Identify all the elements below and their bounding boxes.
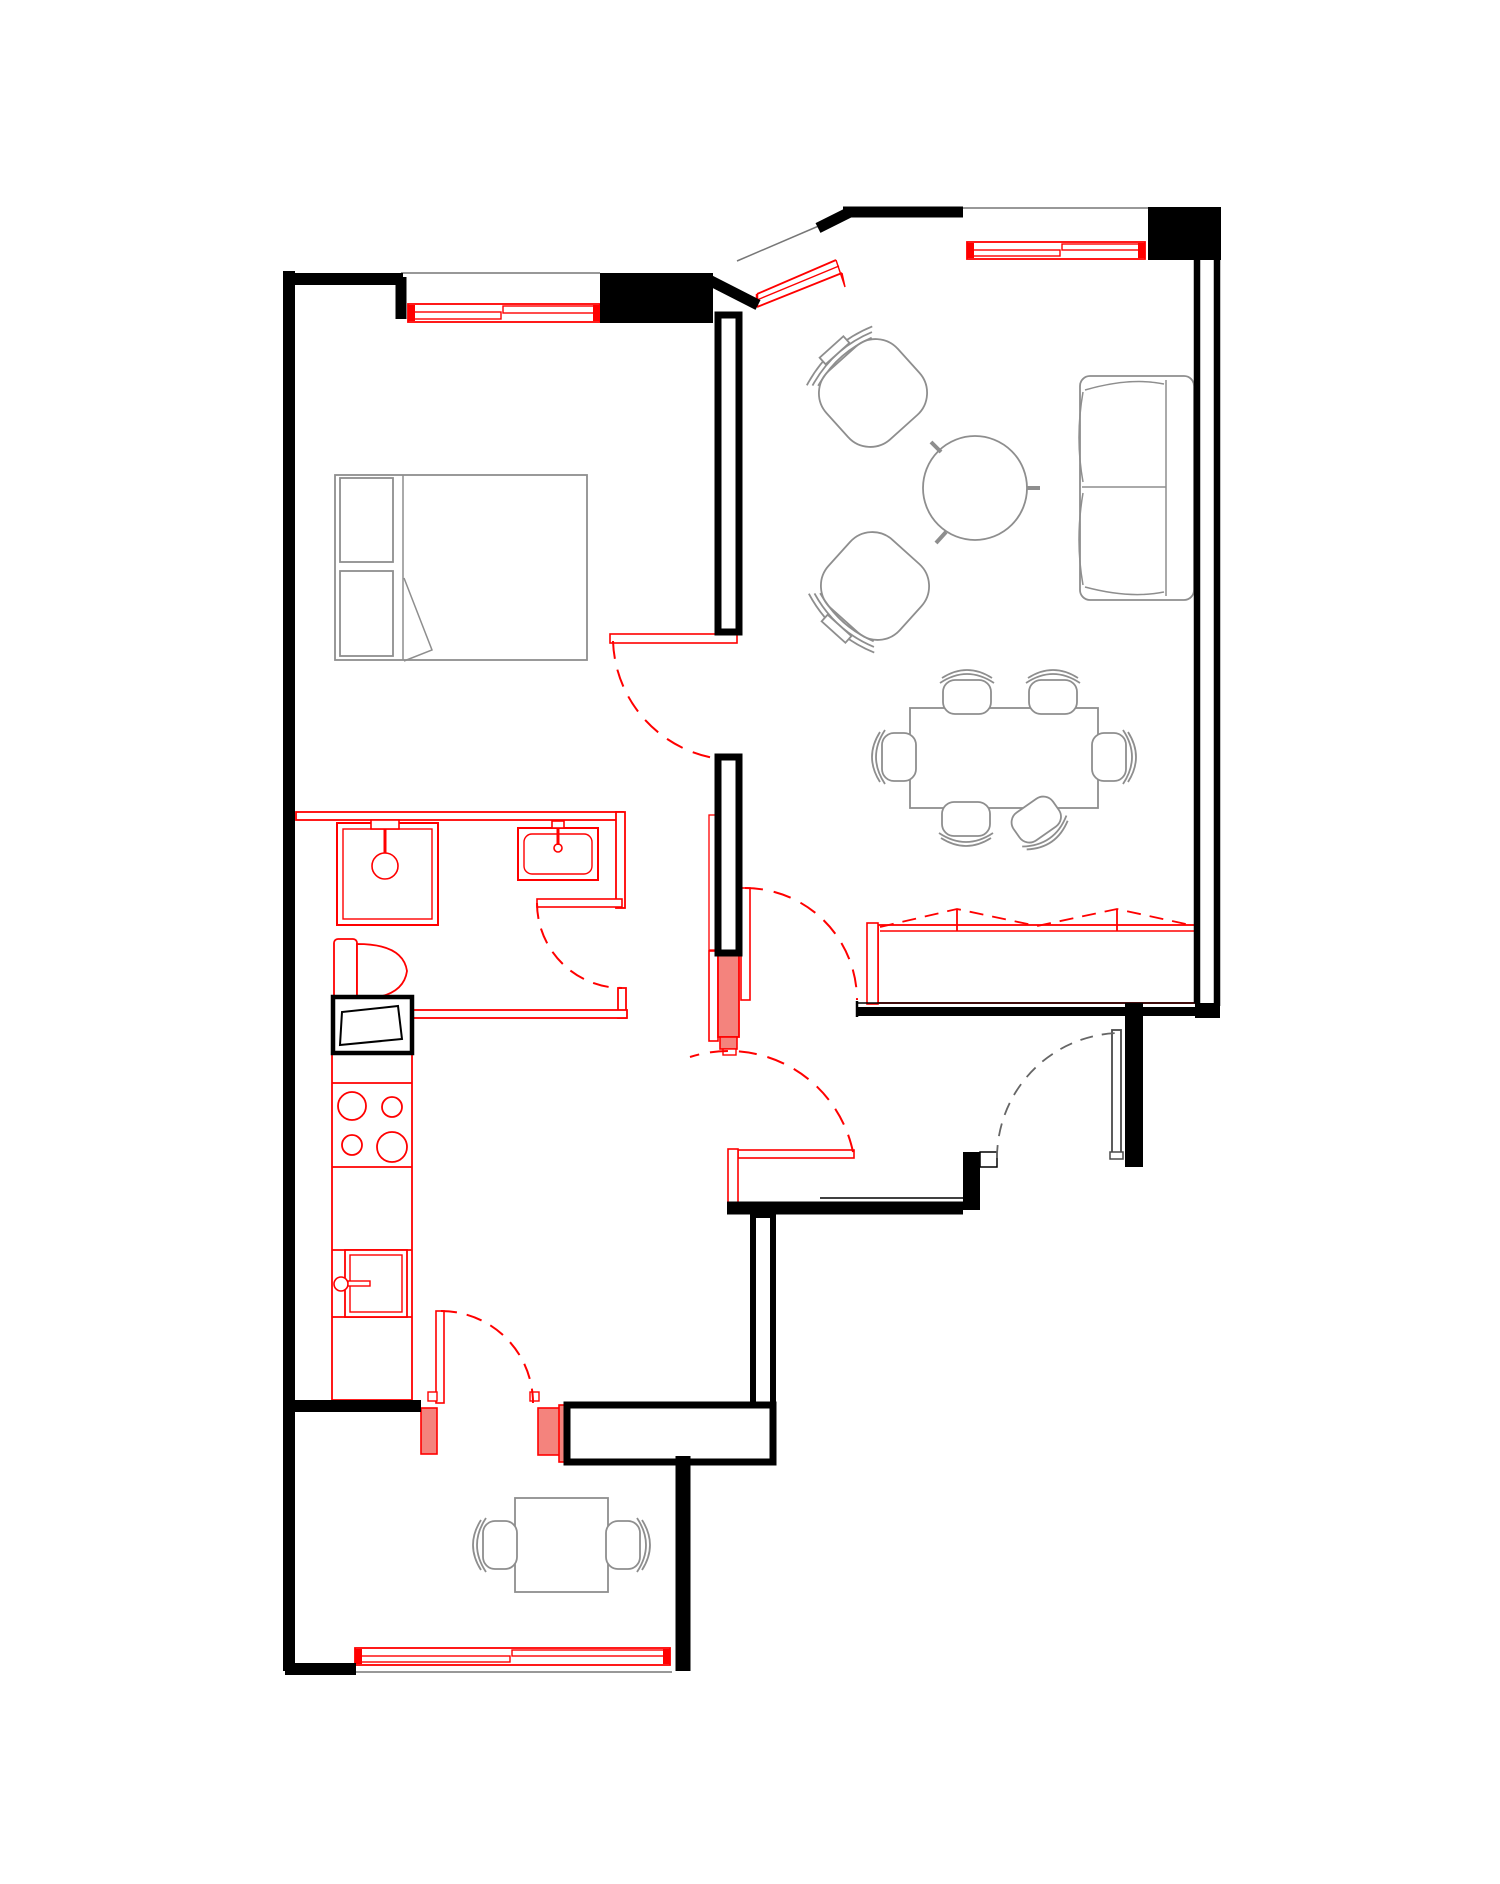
bottom-window-sash-2 [512,1650,668,1656]
shower-valve [371,820,399,829]
wardrobe-side-panel [867,923,878,1004]
hall-corridor-door-arc [690,1051,853,1152]
bedroom-corner-block [600,273,713,323]
dining-table [910,708,1098,808]
bathroom-door-leaf [537,899,622,907]
kitchen-door-arc [441,1311,533,1403]
bedroom-window-sash-1 [413,312,501,319]
kitchen-sink-tap-handle [348,1281,370,1286]
bathroom-south-wall [412,1010,627,1018]
entrance-jamb-stub [963,1152,980,1210]
living-corner-block [1148,207,1221,260]
shower-tray-outer [337,823,438,925]
round-table-foot-1 [931,442,941,452]
entrance-door-leaf [1112,1030,1121,1155]
hall-corridor-door-frame [728,1149,738,1203]
toilet-bowl [357,944,407,999]
kitchen-door-frame-right [530,1392,539,1401]
toilet-tank [334,939,357,1001]
floor-plan-page [0,0,1500,1884]
bottom-window-sash-1 [360,1656,510,1662]
chair-seat [882,733,916,781]
stove-burner-2 [382,1097,402,1117]
bottom-room-chair-1 [473,1518,517,1572]
bedroom-window-sash-2 [503,306,595,313]
bed-frame [335,475,587,660]
living-south-wall [857,1007,1197,1016]
bedroom-window-cap-right [593,305,600,321]
living-window-sash-2 [1062,244,1142,250]
dining-chair-5 [939,802,993,846]
bottom-room-chair-2 [606,1518,650,1572]
entrance-door-arc [997,1033,1117,1158]
bay-window-line-2 [757,266,839,300]
bathroom-side-wall-upper [616,812,625,908]
dining-chair-1 [940,670,994,714]
divider-wall-upper [718,315,739,632]
stove-burner-1 [338,1092,366,1120]
bathroom-door-arc [537,903,622,988]
kitchen-door-leaf [436,1311,444,1403]
bathroom-top-wall [296,812,623,820]
armchair-seat [809,520,942,653]
hall-corridor-door-leaf [738,1150,854,1158]
round-table-foot-3 [936,532,946,543]
bedroom-window-cap-left [408,305,415,321]
bay-window-line-3 [757,273,842,307]
bottomroom-new-jamb-left [421,1408,437,1454]
armchair-1 [796,315,940,459]
living-window-cap-right [1138,243,1145,258]
bay-window-outer-face [737,225,821,261]
dining-chair-2 [1026,670,1080,714]
right-wall-step [1195,1003,1220,1018]
hall-living-door-arc [745,888,857,1000]
chair-seat [942,802,990,836]
entrance-door-hinge [1110,1152,1123,1159]
bottom-room-table [515,1498,608,1592]
wardrobe-body [878,925,1195,1003]
kitchen-door-frame-left [428,1392,437,1401]
bay-wall-lower [709,280,758,305]
chair-seat [483,1521,517,1569]
dining-chair-3 [872,730,916,784]
chair-seat [606,1521,640,1569]
sofa-body [1080,376,1194,600]
entrance-door-layer [997,1030,1123,1159]
bedroom-door-arc [613,641,735,760]
chair-seat [1092,733,1126,781]
bay-window-flare [836,260,845,287]
washbasin-tap [552,821,564,828]
bottom-band-wall [567,1405,773,1462]
chair-seat [943,680,991,714]
living-window-cap-left [967,243,974,258]
floor-plan-svg [0,0,1500,1884]
stove-burner-4 [377,1132,407,1162]
armchair-seat [807,327,940,460]
kitchen-sink-tap [334,1277,348,1291]
dining-chair-4 [1092,730,1136,784]
hall-right-wall [1125,1003,1143,1167]
entrance-jamb-notch [980,1152,997,1167]
chair-seat [1029,680,1077,714]
divider-wall-lower [718,757,739,953]
living-window-sash-1 [972,250,1060,256]
armchair-2 [798,520,942,664]
bottom-window-cap-left [355,1649,362,1664]
central-stub-new-wall [718,955,739,1037]
bottom-window-cap-right [663,1649,670,1664]
stove-burner-3 [342,1135,362,1155]
central-stub-tail [720,1037,737,1049]
central-stub-frame-left [709,951,718,1041]
corridor-east-wall [753,1215,773,1407]
bay-window-line-1 [757,260,836,294]
